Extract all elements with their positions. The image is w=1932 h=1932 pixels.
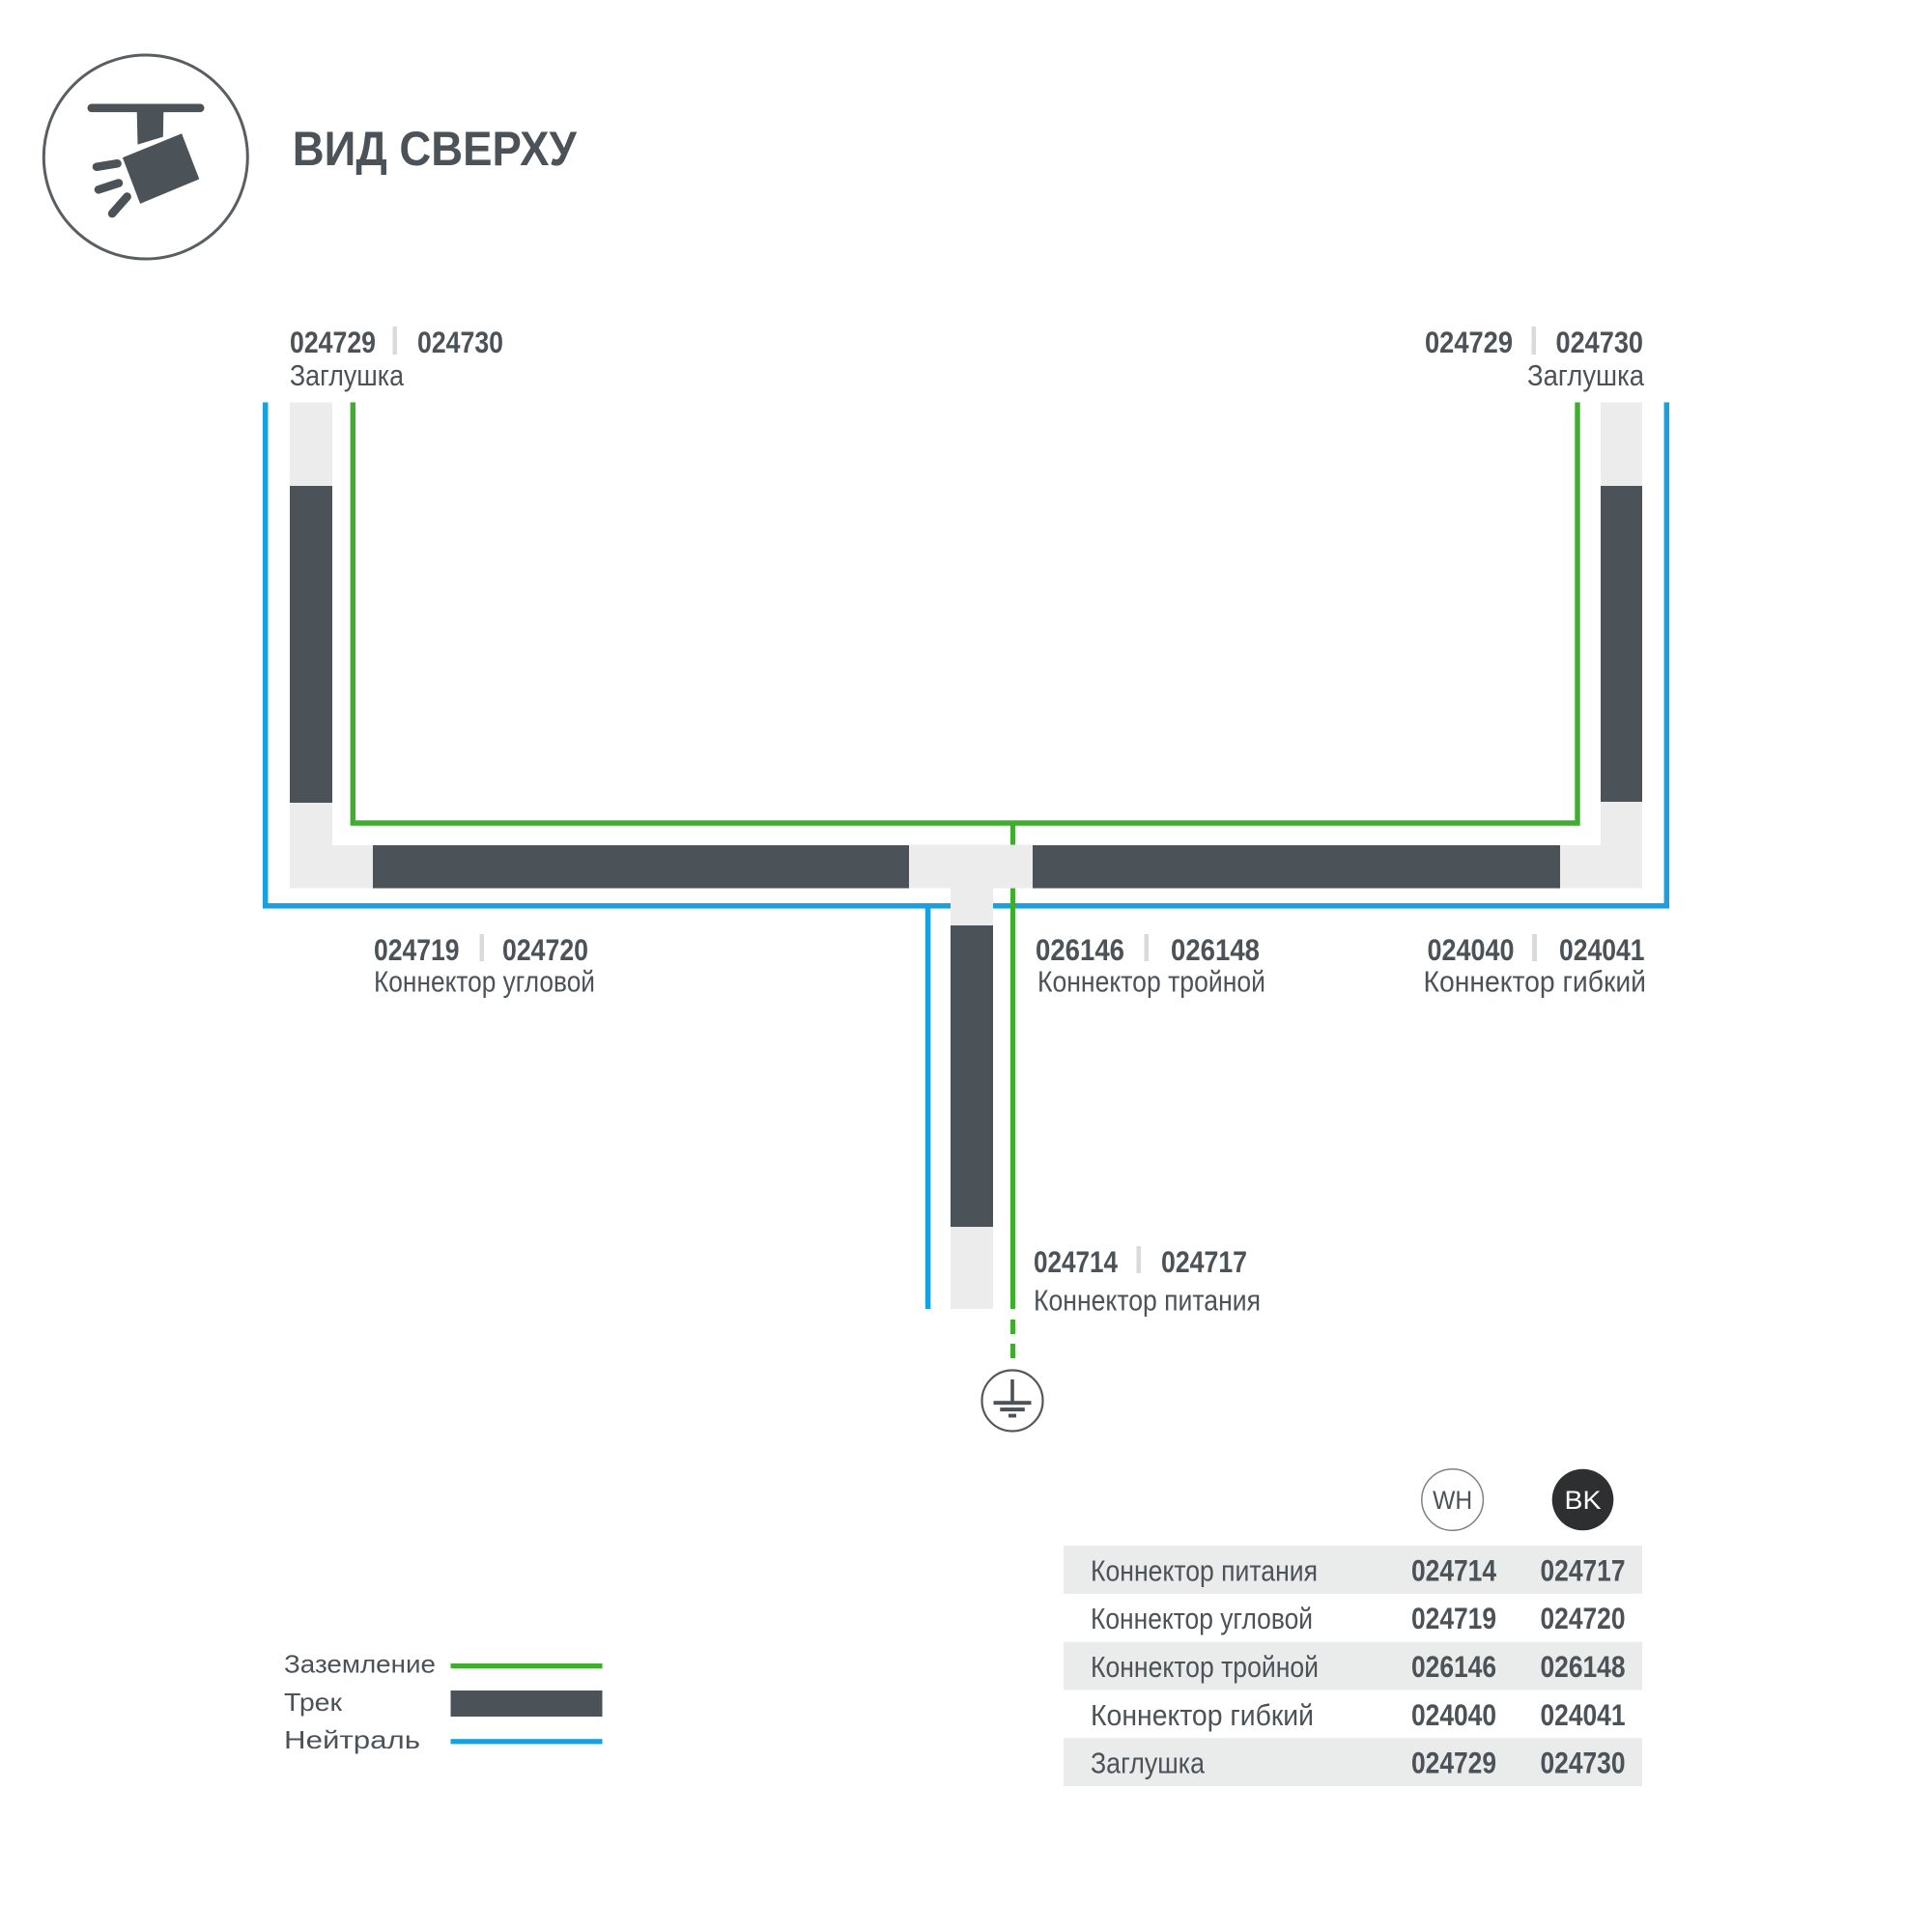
svg-text:Заглушка: Заглушка <box>1527 358 1645 392</box>
svg-text:024730: 024730 <box>1556 325 1644 359</box>
svg-text:024719: 024719 <box>1411 1601 1496 1635</box>
svg-text:024729: 024729 <box>1411 1746 1496 1780</box>
svg-text:Заглушка: Заглушка <box>290 358 405 392</box>
svg-text:024729: 024729 <box>290 325 376 359</box>
svg-text:026146: 026146 <box>1411 1649 1496 1684</box>
svg-text:024717: 024717 <box>1161 1244 1247 1279</box>
svg-text:024714: 024714 <box>1034 1244 1118 1279</box>
svg-text:024720: 024720 <box>502 932 588 967</box>
svg-text:024040: 024040 <box>1428 932 1515 967</box>
svg-text:024040: 024040 <box>1411 1697 1496 1732</box>
svg-text:024730: 024730 <box>1541 1746 1626 1780</box>
svg-text:024730: 024730 <box>417 325 503 359</box>
svg-text:024719: 024719 <box>374 932 460 967</box>
svg-text:Коннектор гибкий: Коннектор гибкий <box>1424 965 1647 999</box>
svg-text:026148: 026148 <box>1171 932 1260 967</box>
svg-text:Заземление: Заземление <box>284 1650 436 1679</box>
svg-text:Заглушка: Заглушка <box>1091 1747 1206 1780</box>
svg-text:024729: 024729 <box>1425 325 1513 359</box>
svg-text:WH: WH <box>1433 1486 1472 1515</box>
svg-text:BK: BK <box>1565 1486 1602 1515</box>
svg-text:026148: 026148 <box>1541 1649 1626 1684</box>
svg-text:Коннектор питания: Коннектор питания <box>1034 1284 1261 1318</box>
svg-text:Нейтраль: Нейтраль <box>284 1725 420 1754</box>
svg-text:Коннектор тройной: Коннектор тройной <box>1091 1650 1319 1684</box>
svg-text:024717: 024717 <box>1541 1552 1626 1587</box>
svg-text:024714: 024714 <box>1411 1552 1496 1587</box>
svg-text:Коннектор угловой: Коннектор угловой <box>374 965 595 999</box>
svg-text:ВИД СВЕРХУ: ВИД СВЕРХУ <box>293 122 578 176</box>
svg-text:Коннектор питания: Коннектор питания <box>1091 1553 1318 1587</box>
svg-text:Коннектор тройной: Коннектор тройной <box>1037 965 1265 999</box>
svg-text:024041: 024041 <box>1559 932 1645 967</box>
svg-text:024720: 024720 <box>1541 1601 1626 1635</box>
svg-text:Трек: Трек <box>284 1688 343 1717</box>
svg-text:026146: 026146 <box>1036 932 1124 967</box>
svg-text:024041: 024041 <box>1541 1697 1626 1732</box>
svg-text:Коннектор угловой: Коннектор угловой <box>1091 1602 1313 1635</box>
svg-text:Коннектор гибкий: Коннектор гибкий <box>1091 1698 1314 1732</box>
